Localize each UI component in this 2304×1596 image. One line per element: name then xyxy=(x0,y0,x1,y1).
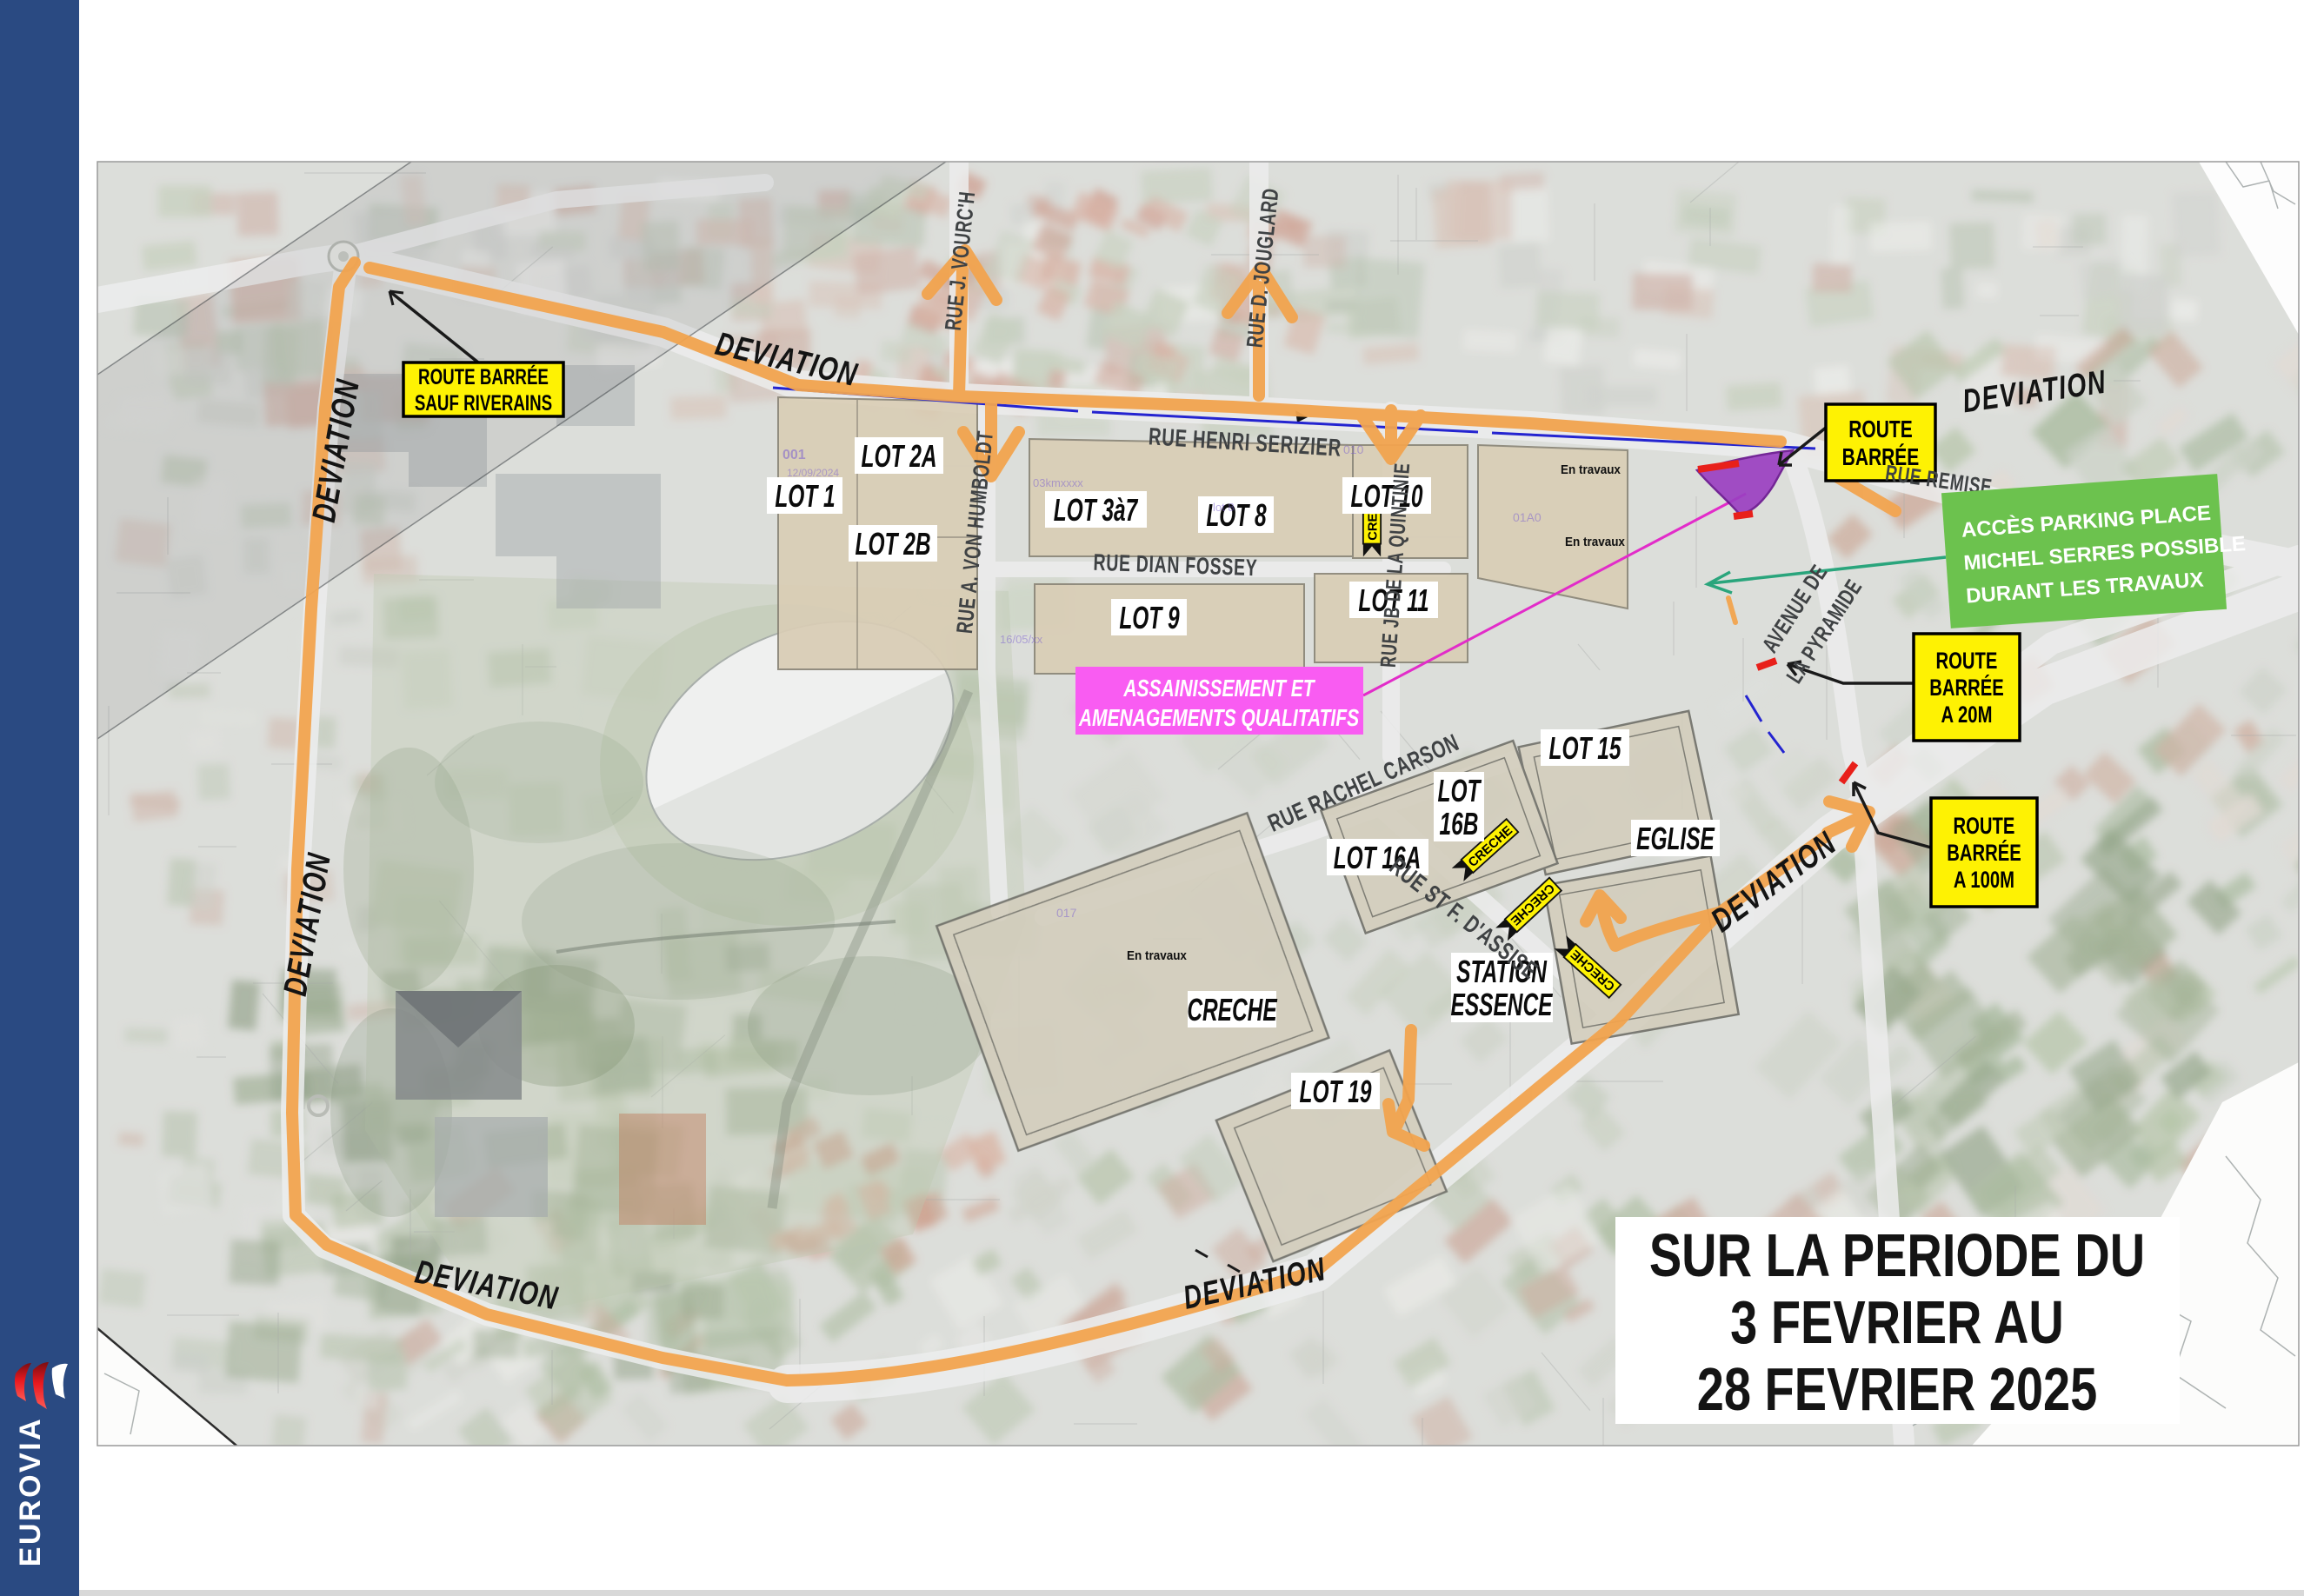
svg-text:BARRÉE: BARRÉE xyxy=(1929,674,2003,702)
svg-text:En travaux: En travaux xyxy=(1127,948,1187,963)
svg-text:LOT 1: LOT 1 xyxy=(775,478,835,514)
svg-text:A 20M: A 20M xyxy=(1941,702,1993,728)
svg-text:CRECHE: CRECHE xyxy=(1187,992,1277,1027)
svg-text:BARRÉE: BARRÉE xyxy=(1947,839,2021,867)
svg-text:LOT 2A: LOT 2A xyxy=(861,438,936,474)
svg-text:16B: 16B xyxy=(1440,806,1479,841)
svg-text:03kmxxxx: 03kmxxxx xyxy=(1033,476,1083,489)
svg-text:ROUTE: ROUTE xyxy=(1954,813,2015,840)
svg-text:ROUTE BARRÉE: ROUTE BARRÉE xyxy=(418,364,549,389)
svg-text:SAUF RIVERAINS: SAUF RIVERAINS xyxy=(415,390,552,415)
svg-text:3 FEVRIER AU: 3 FEVRIER AU xyxy=(1730,1289,2064,1356)
svg-text:12/09/2024: 12/09/2024 xyxy=(787,467,839,479)
svg-text:16/05/xx: 16/05/xx xyxy=(1000,633,1043,646)
svg-text:LOT 9: LOT 9 xyxy=(1119,600,1179,635)
svg-text:LOT: LOT xyxy=(1438,773,1482,808)
svg-text:LOT 19: LOT 19 xyxy=(1300,1074,1372,1109)
svg-text:SUR LA PERIODE DU: SUR LA PERIODE DU xyxy=(1649,1222,2145,1289)
svg-text:28 FEVRIER 2025: 28 FEVRIER 2025 xyxy=(1697,1356,2098,1423)
svg-text:En travaux: En travaux xyxy=(1565,535,1625,549)
svg-text:A 100M: A 100M xyxy=(1954,867,2014,894)
svg-text:017: 017 xyxy=(1056,906,1077,920)
svg-text:LOT 2B: LOT 2B xyxy=(855,526,930,562)
svg-text:En travaux: En travaux xyxy=(1561,462,1621,477)
svg-text:EGLISE: EGLISE xyxy=(1636,821,1715,856)
svg-text:ESSENCE: ESSENCE xyxy=(1451,987,1554,1022)
svg-text:LOT 15: LOT 15 xyxy=(1549,730,1622,766)
svg-text:AMENAGEMENTS QUALITATIFS: AMENAGEMENTS QUALITATIFS xyxy=(1078,705,1359,732)
svg-text:LOT 3à7: LOT 3à7 xyxy=(1054,492,1139,528)
svg-text:001: 001 xyxy=(782,448,806,462)
svg-text:ASSAINISSEMENT ET: ASSAINISSEMENT ET xyxy=(1123,675,1316,702)
svg-text:01A0: 01A0 xyxy=(1513,510,1542,524)
svg-text:ROUTE: ROUTE xyxy=(1848,416,1912,443)
svg-text:010: 010 xyxy=(1343,442,1364,456)
svg-text:EUROVIA: EUROVIA xyxy=(14,1417,47,1566)
svg-text:ROUTE: ROUTE xyxy=(1936,648,1998,675)
svg-text:lot 8: lot 8 xyxy=(1213,501,1235,514)
